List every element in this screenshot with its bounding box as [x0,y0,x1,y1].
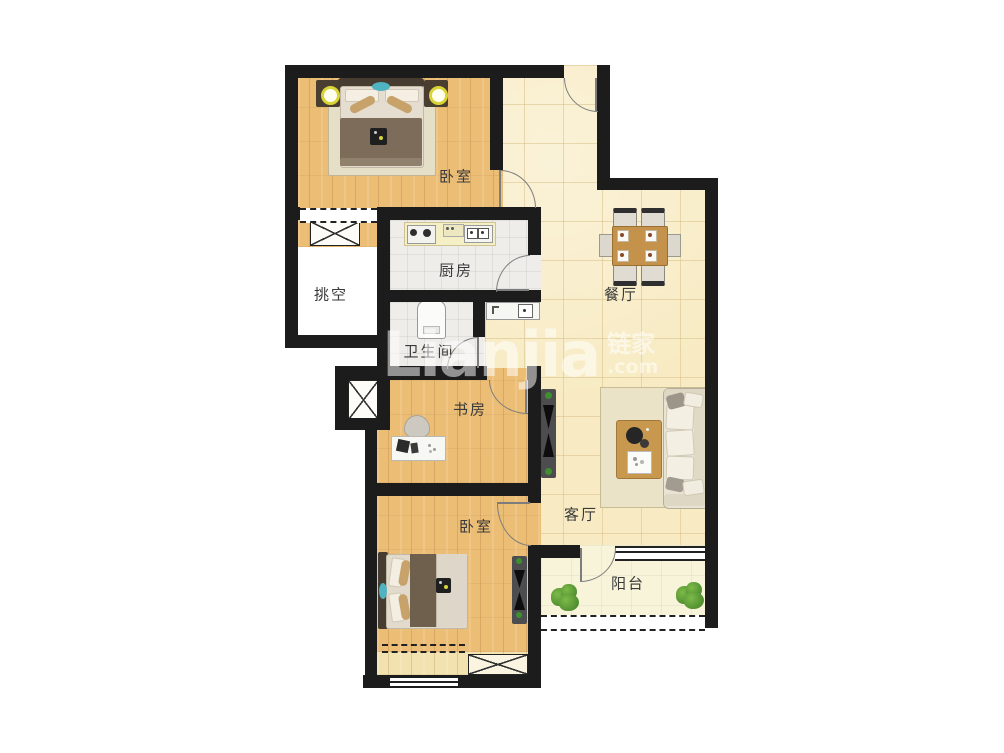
flue-icon [310,221,360,246]
plant-pot-icon [545,392,552,399]
wall [365,483,541,496]
dining-side-seat [667,234,681,257]
wall [528,207,541,255]
sink-drain [481,231,484,234]
study-door-leaf [525,380,527,413]
teacup-icon [640,439,649,448]
room-label-bathroom: 卫生间 [403,341,454,362]
wall [365,430,377,688]
balcony-door-leaf [580,548,582,581]
faucet-icon [492,306,499,308]
wall [528,366,541,503]
burner-icon [410,229,417,236]
tv-icon [514,570,525,610]
plant-pot-icon [545,468,552,475]
desk-decor [428,444,431,447]
flue-icon [468,654,528,675]
plate-icon [620,233,624,237]
window [390,678,458,686]
room-label-study: 书房 [453,399,487,420]
room-label-void: 挑空 [314,284,348,305]
burner-icon [423,229,431,237]
tray-decor [635,463,638,466]
plant-pot-icon [516,612,522,618]
desk-decor [433,448,436,451]
desk-decor [429,450,432,453]
bed-lamp-teal [379,583,387,599]
lamp-icon [321,86,340,105]
wall [335,366,348,430]
appliance-knob [446,227,449,230]
flue-icon [348,380,379,420]
room-label-kitchen: 厨房 [439,260,473,281]
wall [285,65,564,78]
teacup-icon [646,428,649,431]
throw-pillow [683,391,704,408]
plate-icon [620,253,624,257]
throw-pillow [682,479,705,497]
wall [597,178,718,190]
room-label-living: 客厅 [564,504,598,525]
room-label-dining: 餐厅 [604,284,638,305]
kitchen-door-leaf [496,289,529,291]
dining-side-seat [599,234,613,257]
tray-cup [374,131,377,134]
washer-panel [423,326,440,334]
bay-window-dashed [382,644,465,646]
appliance-knob [451,227,454,230]
tray-decor [633,457,637,461]
room-label-bedroom-top: 卧室 [439,166,473,187]
bedroom-top-door-leaf [499,170,501,207]
tray-decor [640,460,644,464]
plate-icon [648,233,652,237]
wall [377,207,541,220]
wall [285,335,390,348]
bay-window-dashed [382,651,465,653]
window [300,208,377,223]
kitchen-appliance [443,224,464,237]
bathroom-door-leaf [477,337,479,368]
tray-cup [439,581,442,584]
window [615,546,705,561]
bed-lamp-teal [372,82,390,91]
wall [285,207,298,348]
plant-pot-icon [516,558,522,564]
floor-plan: 卧室 厨房 餐厅 挑空 卫生间 书房 客厅 卧室 阳台 Lianjia 链家 .… [0,0,1004,753]
sofa-cushion [665,429,695,457]
tray-cup [444,585,448,589]
bedroom-bottom-door-leaf [497,502,530,504]
wall [705,178,718,628]
tray-cup [379,136,383,140]
room-label-bedroom-bottom: 卧室 [459,516,493,537]
sink-drain [523,309,526,312]
wall [285,65,298,220]
bed-blanket [410,554,436,627]
entry-door-leaf [595,78,597,111]
wall [473,302,485,337]
plant-icon [676,582,706,610]
balcony-railing [541,615,705,631]
plate-icon [648,253,652,257]
book-icon [410,443,418,454]
wall [528,545,541,688]
laptop-icon [396,439,410,453]
wall [597,65,610,190]
sink-drain [470,231,473,234]
room-label-balcony: 阳台 [611,573,645,594]
wall [490,65,503,170]
plant-icon [551,584,581,612]
lamp-icon [429,86,448,105]
desk-chair [404,415,430,438]
wall [377,207,390,430]
bed-blanket-fold [340,158,422,166]
tv-icon [543,405,554,457]
